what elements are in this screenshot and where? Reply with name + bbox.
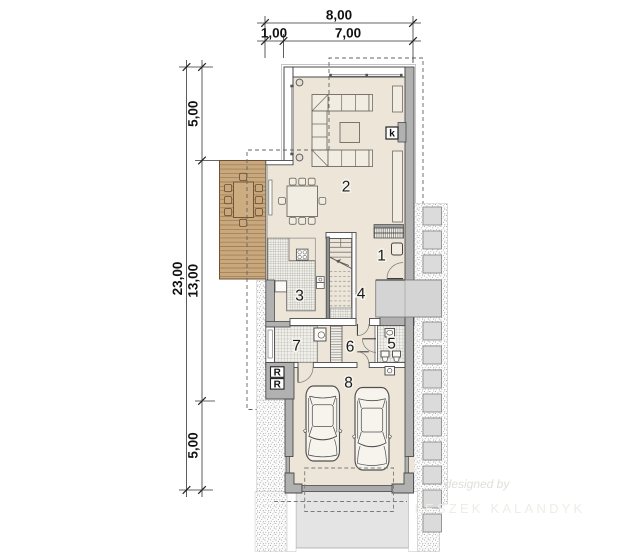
svg-text:k: k [389, 128, 395, 140]
svg-text:LESZEK KALANDYK: LESZEK KALANDYK [415, 501, 586, 516]
svg-text:8,00: 8,00 [326, 8, 352, 23]
svg-text:1: 1 [377, 248, 386, 265]
svg-text:13,00: 13,00 [186, 264, 201, 298]
svg-text:5: 5 [387, 336, 396, 353]
svg-text:5,00: 5,00 [186, 101, 201, 127]
svg-text:R: R [274, 368, 282, 379]
svg-text:6: 6 [346, 339, 355, 356]
svg-text:designed by: designed by [445, 477, 511, 491]
svg-text:7,00: 7,00 [335, 26, 361, 41]
svg-text:4: 4 [357, 286, 366, 303]
svg-text:2: 2 [342, 179, 351, 196]
svg-text:23,00: 23,00 [170, 262, 185, 296]
svg-text:7: 7 [292, 338, 301, 355]
svg-text:5,00: 5,00 [186, 432, 201, 458]
svg-text:R: R [274, 379, 282, 390]
svg-text:1,00: 1,00 [261, 26, 287, 41]
svg-text:8: 8 [344, 375, 353, 392]
svg-text:3: 3 [295, 288, 304, 305]
